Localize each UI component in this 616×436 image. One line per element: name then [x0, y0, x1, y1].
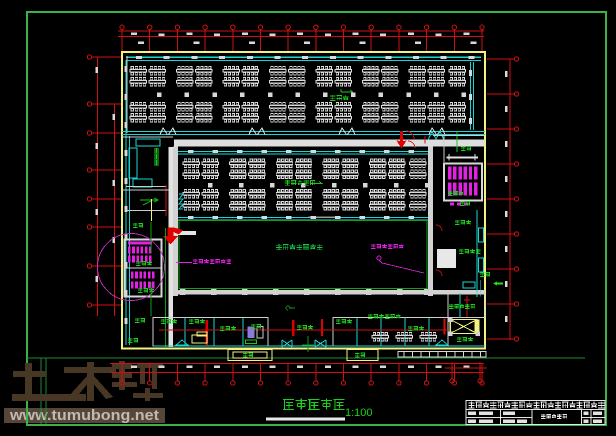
svg-text:1:100: 1:100	[345, 407, 373, 419]
svg-text:www.tumubong.net: www.tumubong.net	[9, 408, 159, 424]
